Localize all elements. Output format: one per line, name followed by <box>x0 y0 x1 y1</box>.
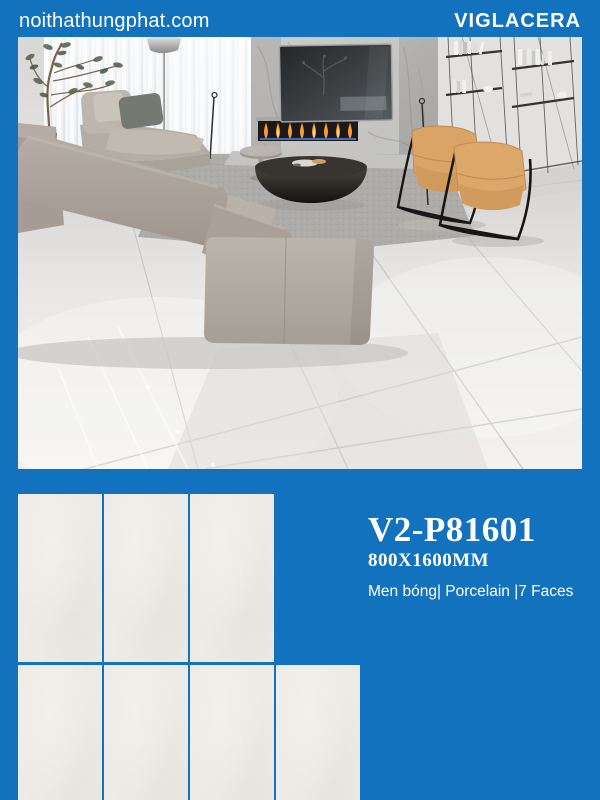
tile-swatch <box>190 665 274 800</box>
product-size: 800X1600MM <box>368 550 573 572</box>
tile-swatch <box>18 494 102 662</box>
tile-flyer: noithathungphat.com VIGLACERA <box>0 0 600 800</box>
tile-swatch <box>104 494 188 662</box>
tile-swatch <box>276 665 360 800</box>
tile-swatch <box>190 494 274 662</box>
tile-row-top <box>18 494 360 662</box>
tile-row-bottom <box>18 665 360 800</box>
tile-pattern <box>18 494 360 800</box>
product-info: V2-P81601 800X1600MM Men bóng| Porcelain… <box>368 512 573 601</box>
tile-swatch <box>104 665 188 800</box>
tv-screen <box>279 44 392 122</box>
coffee-table <box>255 156 367 211</box>
header: noithathungphat.com VIGLACERA <box>0 0 600 37</box>
site-url: noithathungphat.com <box>19 10 210 33</box>
tile-swatch <box>18 665 102 800</box>
brand-wordmark: VIGLACERA <box>454 10 581 33</box>
living-room-photo <box>18 37 582 469</box>
product-code: V2-P81601 <box>368 512 573 548</box>
product-specs: Men bóng| Porcelain |7 Faces <box>368 582 573 601</box>
